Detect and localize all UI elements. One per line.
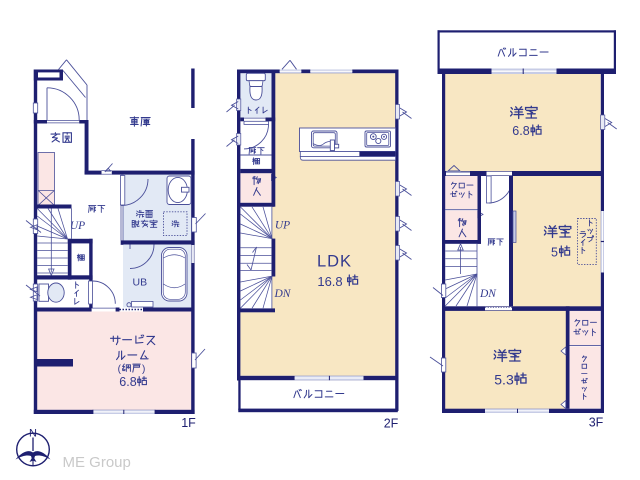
svg-text:2F: 2F — [384, 417, 399, 431]
svg-text:16.8: 16.8 — [317, 274, 342, 289]
svg-text:): ) — [142, 364, 145, 375]
svg-text:ME Group: ME Group — [63, 454, 131, 471]
svg-text:3F: 3F — [589, 416, 604, 430]
svg-text:DN: DN — [479, 288, 497, 300]
svg-text:5.3: 5.3 — [494, 372, 514, 388]
svg-text:UB: UB — [133, 277, 148, 289]
svg-text:UP: UP — [275, 220, 290, 232]
svg-text:1F: 1F — [181, 416, 196, 430]
svg-text:DN: DN — [274, 288, 292, 300]
svg-text:5: 5 — [551, 246, 558, 260]
svg-text:6.8: 6.8 — [119, 375, 136, 389]
svg-text:LDK: LDK — [317, 253, 352, 271]
svg-text:UP: UP — [70, 220, 85, 232]
svg-text:6.8: 6.8 — [512, 124, 529, 138]
